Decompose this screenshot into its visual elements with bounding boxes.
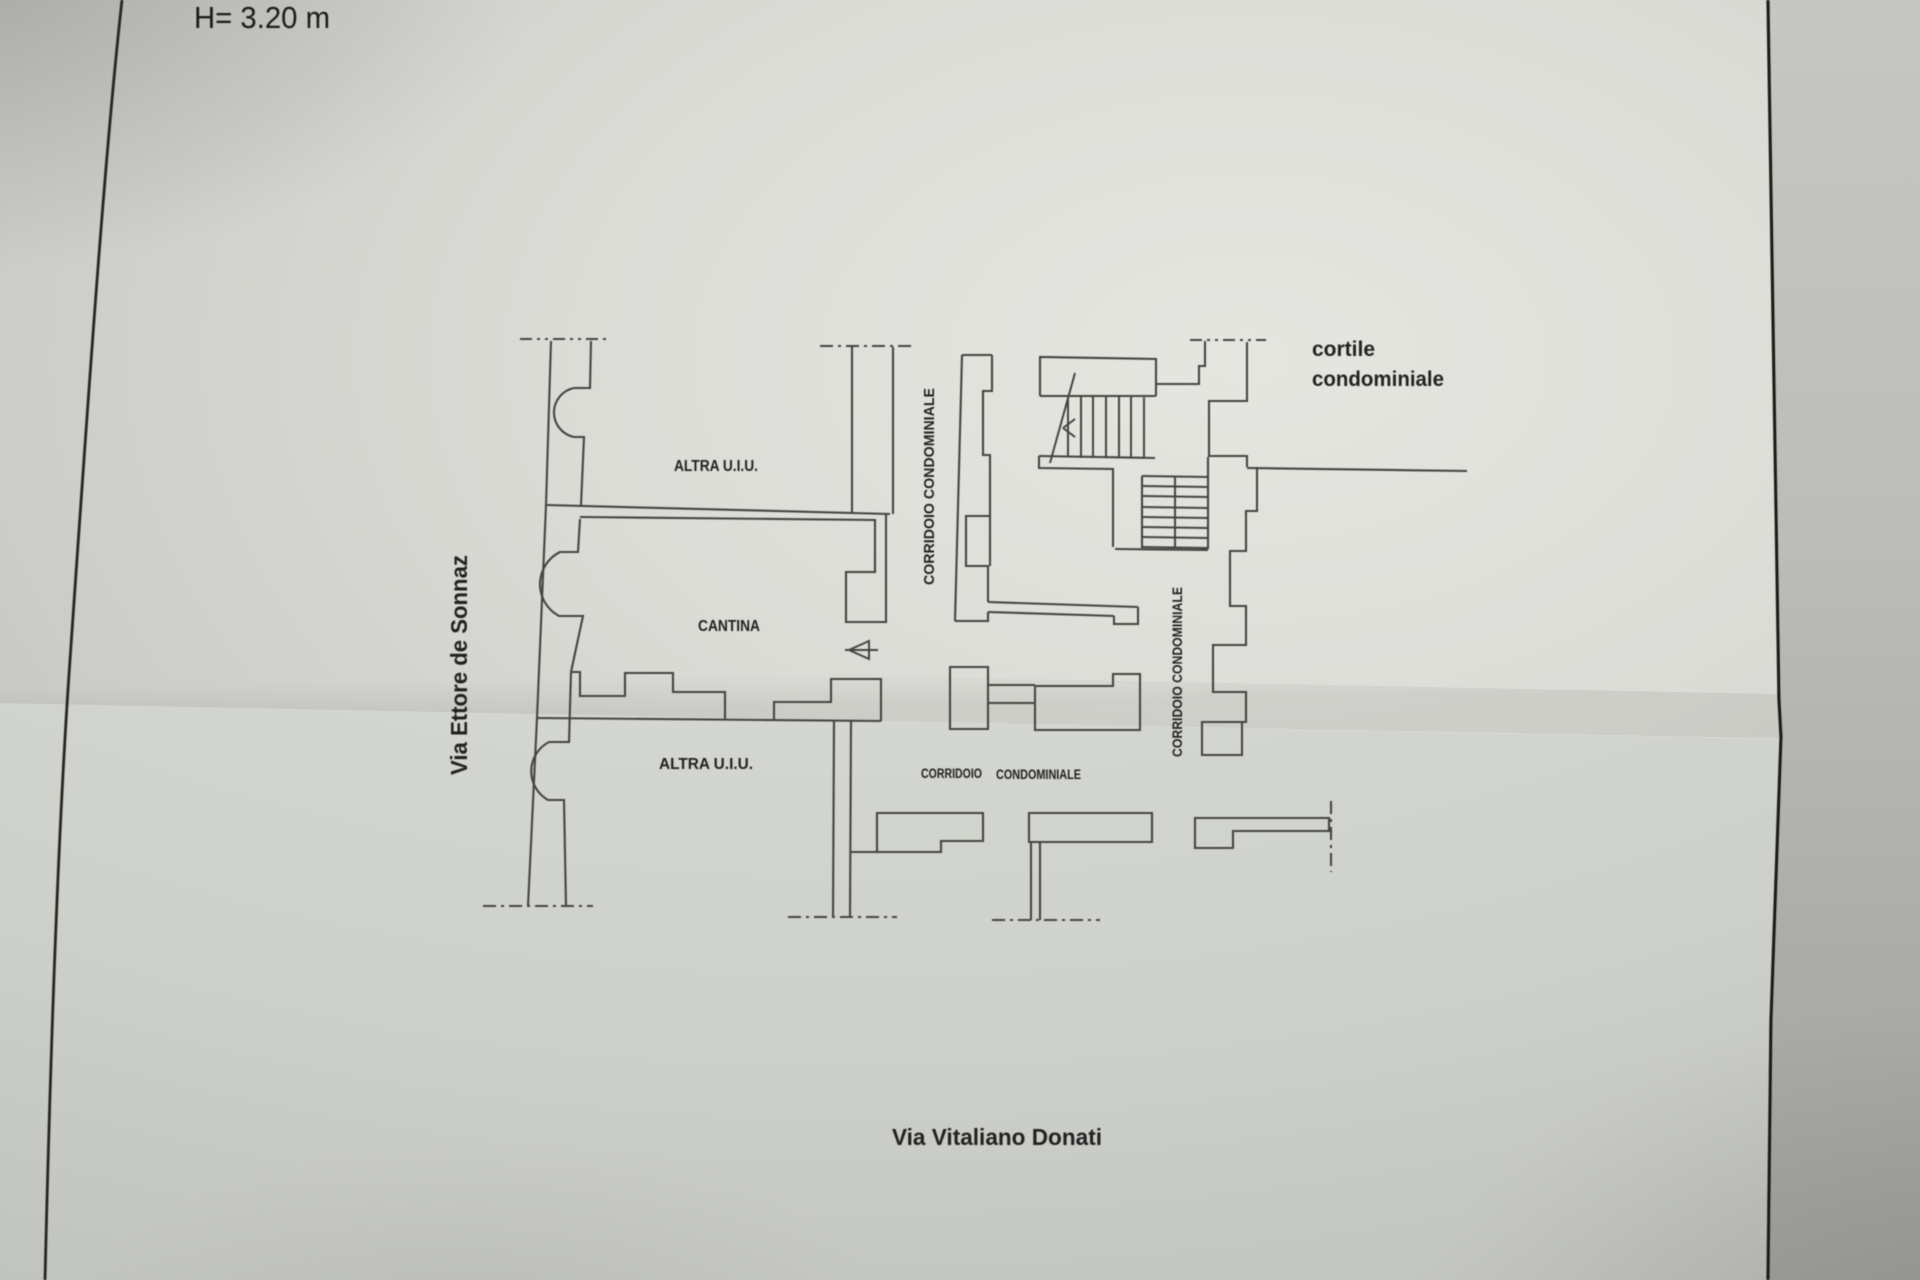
svg-text:Via Vitaliano Donati: Via Vitaliano Donati <box>892 1124 1102 1150</box>
svg-text:CORRIDOIO: CORRIDOIO <box>921 766 982 781</box>
svg-text:cortile: cortile <box>1312 338 1375 361</box>
svg-text:condominiale: condominiale <box>1312 368 1444 391</box>
svg-text:CONDOMINIALE: CONDOMINIALE <box>996 767 1081 782</box>
svg-text:CORRIDOIO CONDOMINIALE: CORRIDOIO CONDOMINIALE <box>922 388 938 585</box>
svg-text:CORRIDOIO CONDOMINIALE: CORRIDOIO CONDOMINIALE <box>1169 587 1185 757</box>
svg-text:H= 3.20 m: H= 3.20 m <box>194 0 330 35</box>
svg-text:ALTRA U.I.U.: ALTRA U.I.U. <box>674 458 758 475</box>
svg-text:Via Ettore de Sonnaz: Via Ettore de Sonnaz <box>446 555 472 775</box>
svg-text:ALTRA U.I.U.: ALTRA U.I.U. <box>659 756 753 773</box>
svg-text:CANTINA: CANTINA <box>698 618 760 635</box>
